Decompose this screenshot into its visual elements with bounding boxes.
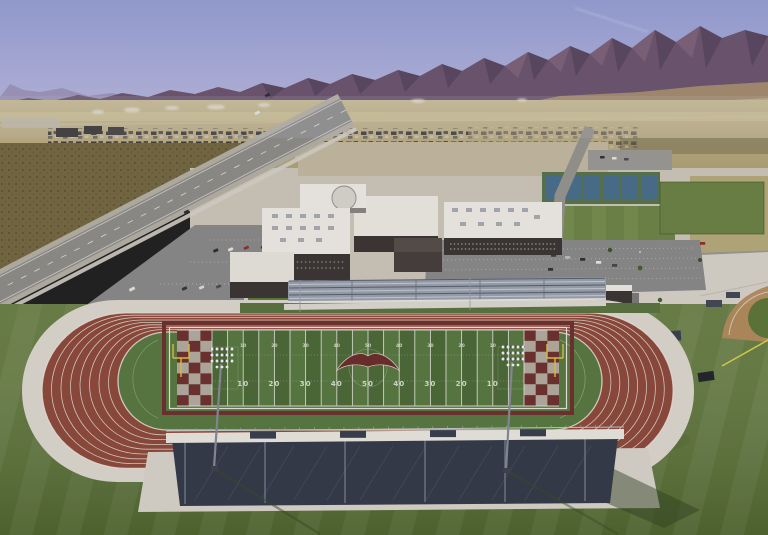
aerial-campus-photo: 10 20 30 40 50 40 30 20 10 10 20 30 40 5… (0, 0, 768, 535)
scene-canvas: 10 20 30 40 50 40 30 20 10 10 20 30 40 5… (0, 0, 768, 535)
photo-vignette (0, 0, 768, 535)
